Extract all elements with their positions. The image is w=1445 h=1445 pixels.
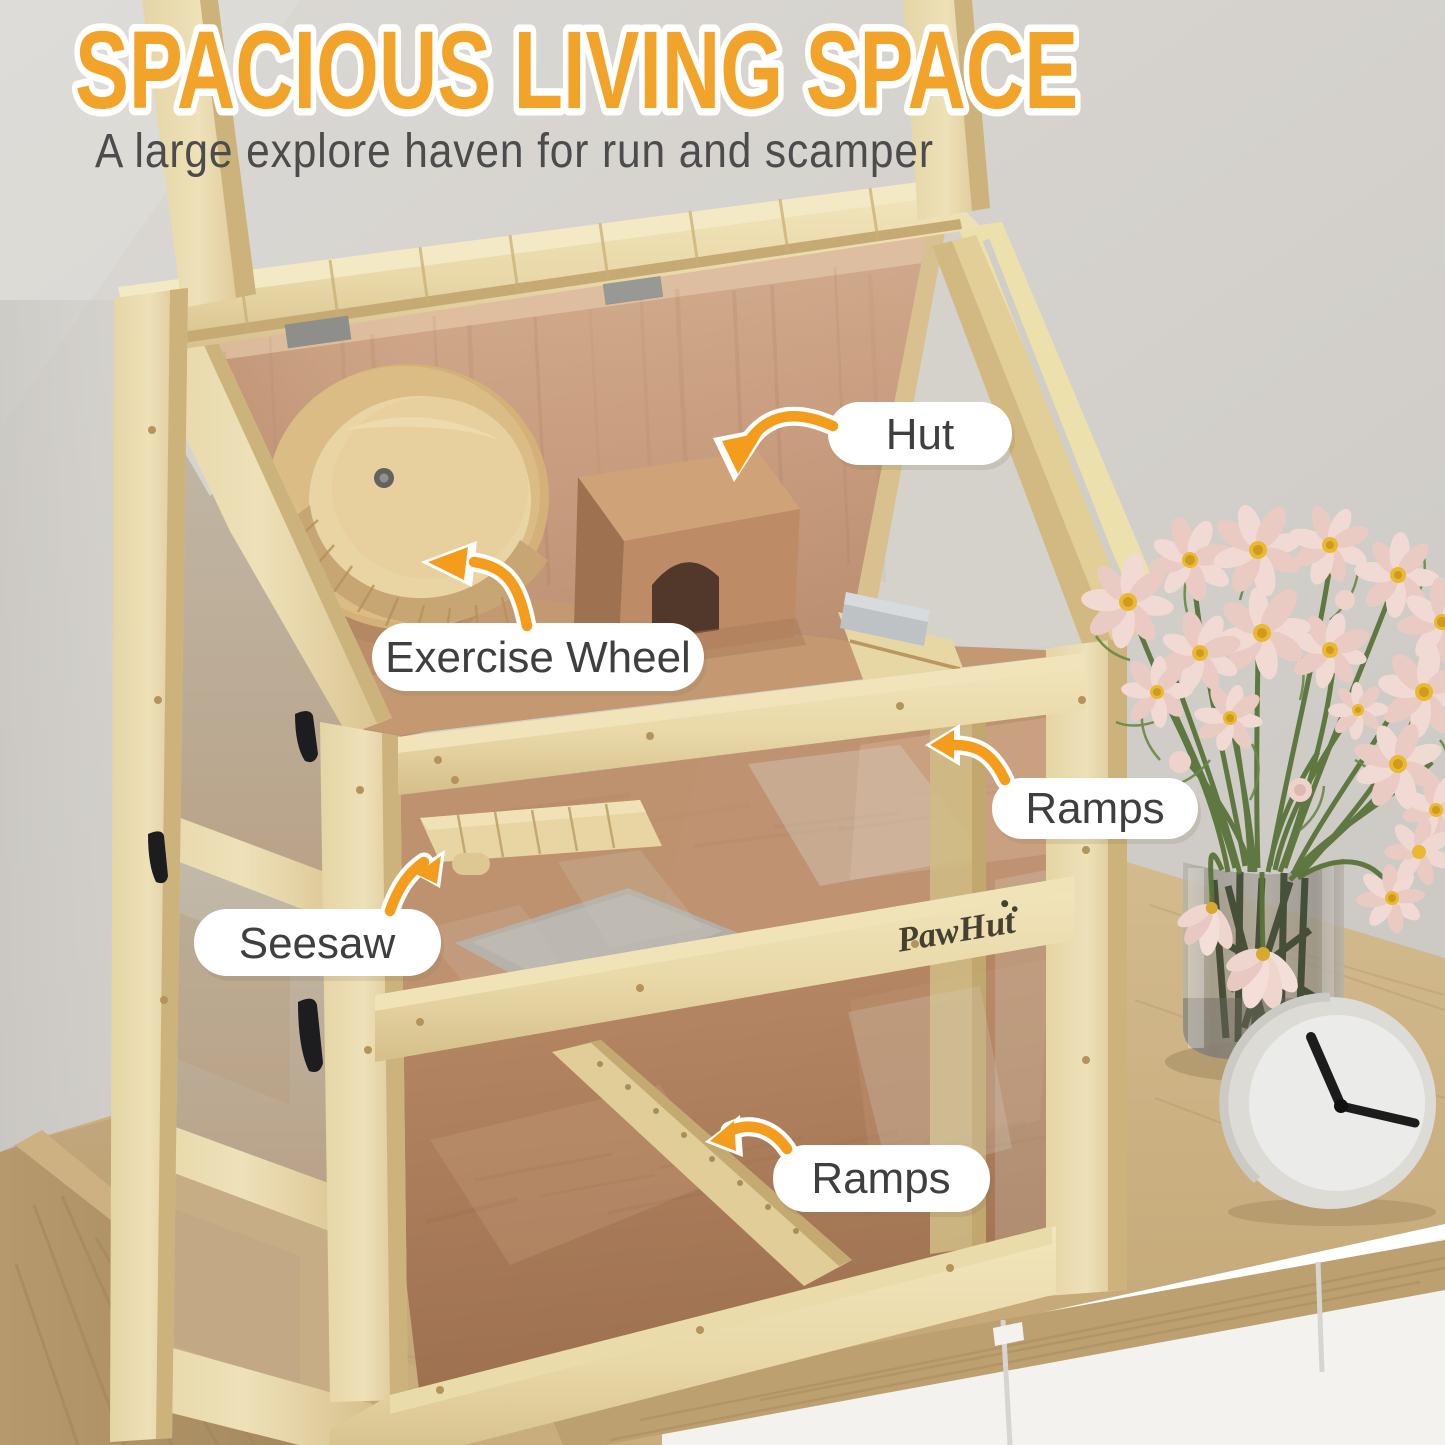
svg-text:A large explore haven for run: A large explore haven for run and scampe… — [95, 124, 934, 178]
svg-text:Exercise Wheel: Exercise Wheel — [385, 633, 691, 682]
svg-text:Ramps: Ramps — [811, 1154, 950, 1203]
svg-text:SPACIOUS LIVING SPACE: SPACIOUS LIVING SPACE — [75, 10, 1078, 132]
svg-text:Hut: Hut — [886, 410, 954, 459]
svg-text:Ramps: Ramps — [1025, 784, 1164, 833]
svg-text:Seesaw: Seesaw — [239, 919, 396, 968]
